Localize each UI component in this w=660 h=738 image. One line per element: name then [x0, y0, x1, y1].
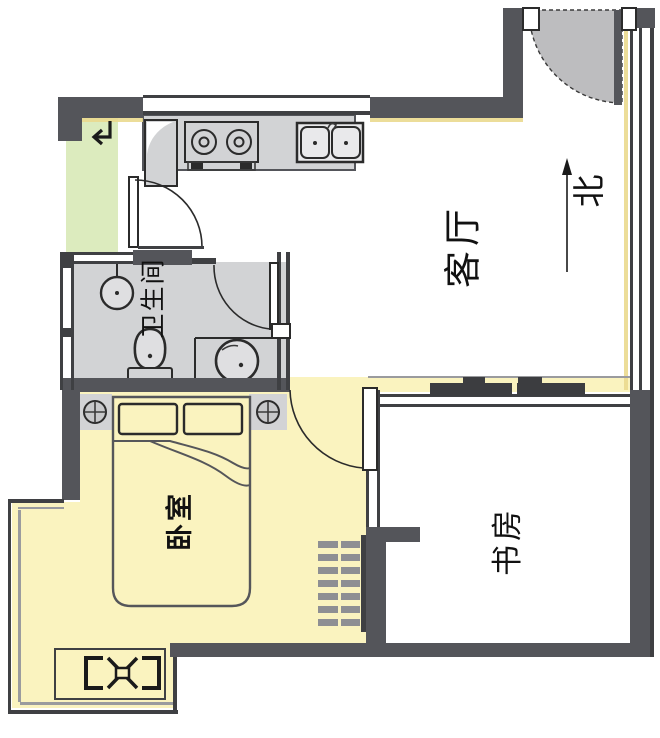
wall-study-left [366, 527, 386, 657]
stove-knob [240, 163, 252, 169]
label-bathroom: 卫生间 [140, 257, 168, 338]
wall-shadow [624, 28, 628, 390]
kitchen-door [129, 177, 204, 249]
label-living-room: 客厅 [442, 204, 484, 288]
wall-study-right [630, 390, 650, 645]
bathroom-door-jamb [272, 324, 290, 338]
north-arrow [562, 158, 572, 272]
kitchen-window [143, 95, 370, 115]
label-north: 北 [573, 175, 609, 208]
wall-bathroom-top-thin [192, 258, 216, 264]
wall-study-left-stub [366, 527, 420, 542]
north-arrowhead [562, 158, 572, 175]
nightstand-left [78, 394, 112, 430]
label-bedroom: 卧室 [164, 491, 195, 551]
wall-shadow [370, 118, 523, 122]
label-study: 书房 [490, 506, 525, 576]
floor-plan: 客厅 卫生间 卧室 书房 北 [0, 0, 660, 738]
kitchen-door-leaf [129, 177, 138, 247]
entry-door-jamb [622, 8, 636, 30]
entry-door-leaf [614, 10, 622, 105]
wall-bottom [170, 643, 650, 657]
kitchen-sink [297, 123, 363, 162]
stove-knob [191, 163, 203, 169]
wall-top-center [370, 97, 523, 118]
entry-door-jamb [523, 8, 539, 30]
floor-plan-canvas: 客厅 卫生间 卧室 书房 北 [0, 0, 660, 738]
wall-top-left-corner [58, 97, 82, 141]
entry-door [523, 8, 636, 105]
sliding-door-panel-left [430, 383, 512, 396]
kitchen-door-swing [135, 180, 202, 247]
bedroom-door-leaf [363, 388, 377, 470]
entry-door-swing [529, 10, 622, 103]
pillow-left [119, 404, 177, 434]
fridge-cabinet [145, 120, 177, 186]
wall-entry-vertical [503, 8, 523, 118]
pillow-right [184, 404, 242, 434]
sliding-door-panel-right [517, 383, 585, 396]
bathroom-door-leaf [270, 263, 278, 329]
nightstand-right [249, 394, 287, 430]
wall-bathroom-bottom [62, 378, 290, 392]
wall-bedroom-left [62, 390, 80, 500]
